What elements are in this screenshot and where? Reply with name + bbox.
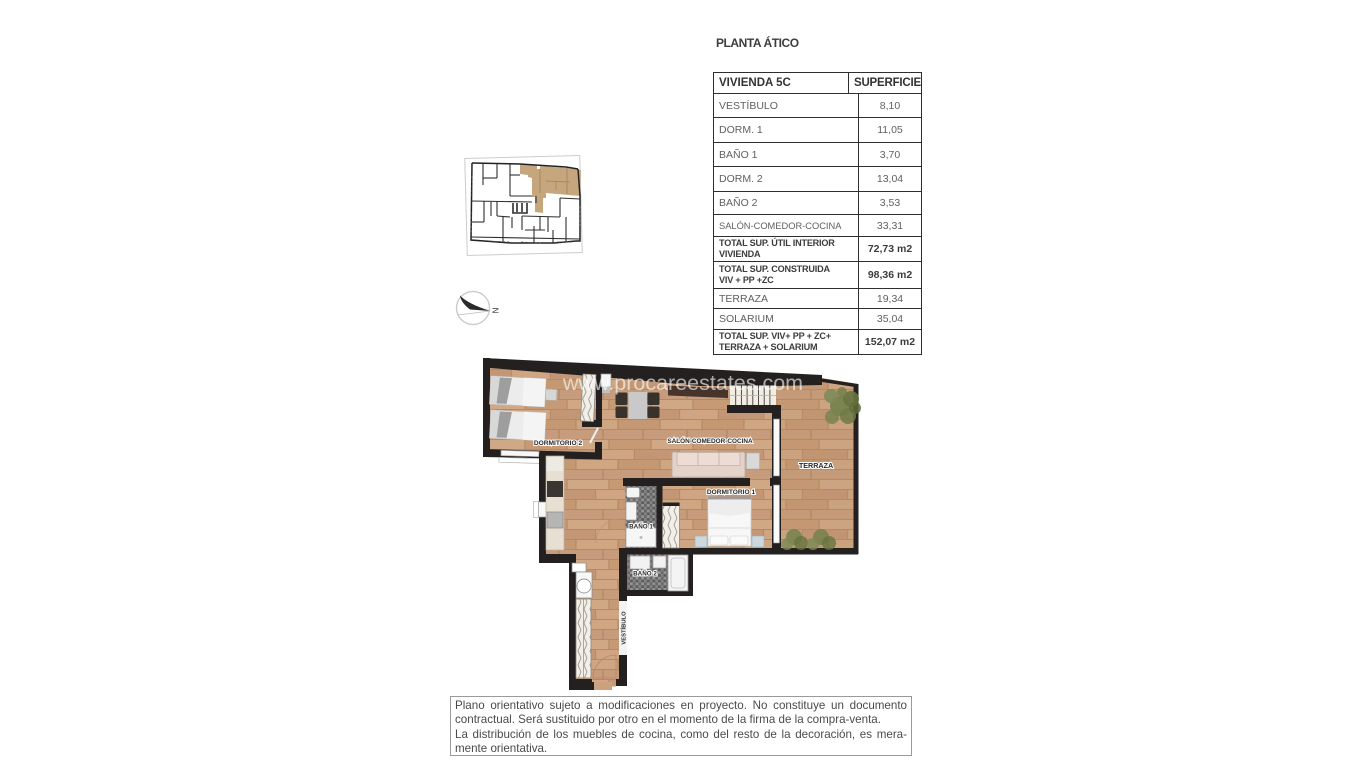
svg-text:TERRAZA: TERRAZA: [799, 461, 833, 470]
svg-text:SALÓN-COMEDOR-COCINA: SALÓN-COMEDOR-COCINA: [667, 436, 753, 445]
svg-text:BAÑO 2: BAÑO 2: [633, 569, 657, 578]
svg-text:DORMITORIO 2: DORMITORIO 2: [534, 440, 583, 447]
svg-text:BAÑO 1: BAÑO 1: [629, 522, 653, 531]
svg-text:N: N: [491, 308, 500, 314]
svg-text:DORMITORIO 1: DORMITORIO 1: [707, 489, 756, 496]
svg-text:www.procareestates.com: www.procareestates.com: [562, 371, 803, 395]
svg-text:VESTÍBULO: VESTÍBULO: [620, 611, 628, 645]
